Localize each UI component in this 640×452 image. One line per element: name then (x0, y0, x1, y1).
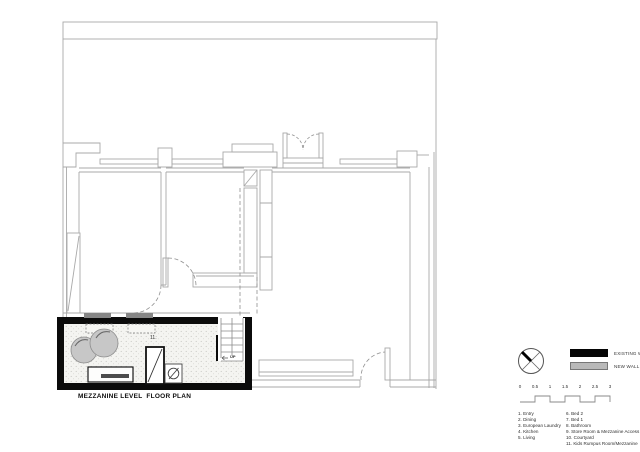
scale-tick: 0.5 (532, 384, 538, 389)
scale-tick: 1.5 (562, 384, 568, 389)
appliance-symbol (165, 364, 182, 383)
floor-plan-sheet: MEZZANINE LEVEL FLOOR PLAN 11. UP EXISTI… (0, 0, 640, 452)
stairs-up-label: UP (230, 354, 236, 359)
floor-plan-drawing (0, 0, 640, 452)
north-arrow-icon (519, 349, 544, 374)
scale-tick: 3 (609, 384, 612, 389)
room-schedule-item: 11. Kids Rumpus Room/Mezzanine (566, 441, 639, 447)
scale-tick: 1 (549, 384, 552, 389)
room-schedule-column-1: 1. Entry 2. Dining 3. European Laundry 4… (518, 411, 561, 441)
room-11-label: 11. (150, 335, 157, 341)
scale-tick: 0 (519, 384, 522, 389)
scale-tick: 2 (579, 384, 582, 389)
mezzanine-door (146, 347, 164, 384)
media-bench (88, 367, 133, 382)
room-schedule-column-2: 6. Bed 2 7. Bed 1 8. Bathroom 9. Store R… (566, 411, 639, 448)
existing-wall-label: EXISTING WALL (614, 351, 640, 356)
plan-title: MEZZANINE LEVEL FLOOR PLAN (78, 393, 191, 400)
mezzanine-room (57, 313, 252, 390)
new-wall-label: NEW WALL (614, 364, 639, 369)
room-schedule-item: 5. Living (518, 435, 561, 441)
legend-existing-wall-row: EXISTING WALL (570, 349, 640, 357)
new-wall-swatch (570, 362, 608, 370)
scale-tick: 2.5 (592, 384, 598, 389)
existing-wall-swatch (570, 349, 608, 357)
scale-bar (520, 396, 610, 402)
legend-new-wall-row: NEW WALL (570, 362, 639, 370)
